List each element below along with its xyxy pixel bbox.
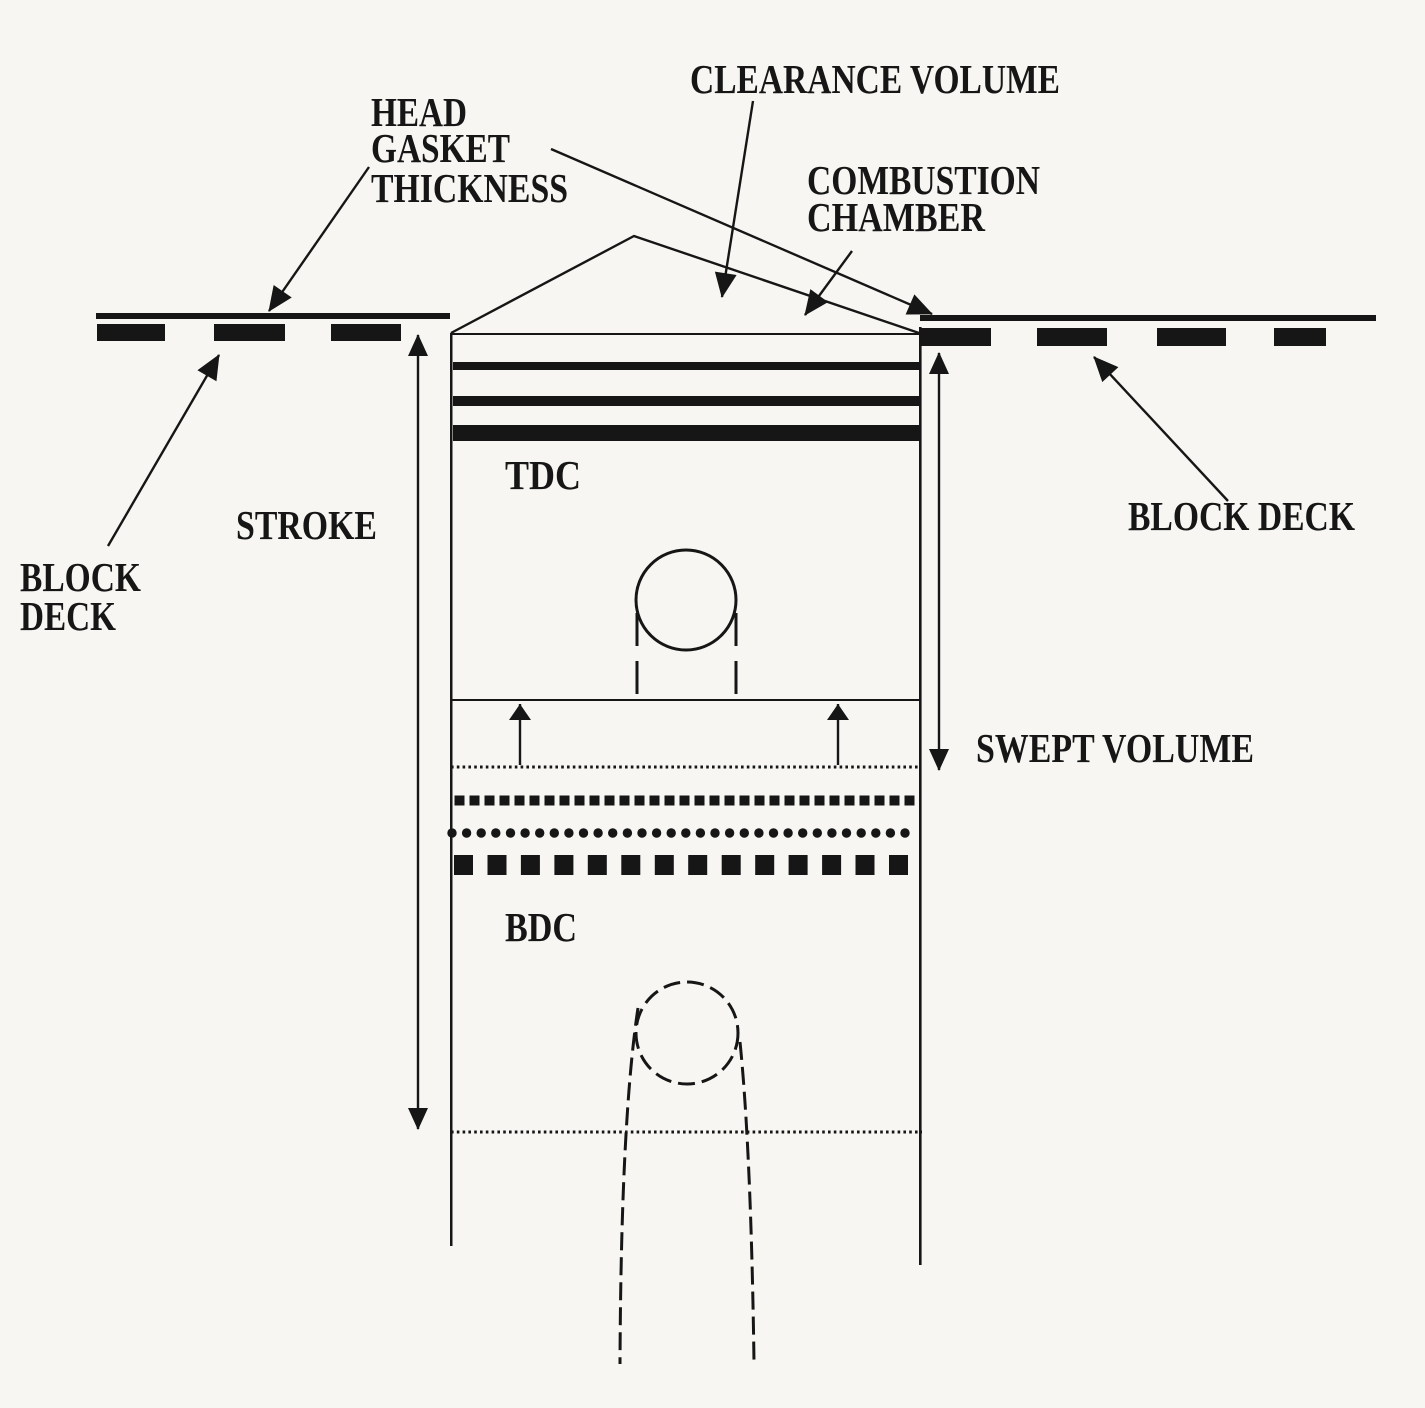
svg-text:BDC: BDC [505, 904, 577, 950]
svg-text:DECK: DECK [20, 593, 116, 639]
svg-text:STROKE: STROKE [236, 502, 377, 548]
svg-text:BLOCK DECK: BLOCK DECK [1128, 493, 1355, 539]
svg-text:CLEARANCE VOLUME: CLEARANCE VOLUME [690, 56, 1060, 102]
svg-text:THICKNESS: THICKNESS [371, 165, 568, 211]
svg-text:SWEPT VOLUME: SWEPT VOLUME [976, 725, 1254, 771]
svg-text:TDC: TDC [505, 452, 581, 498]
svg-text:CHAMBER: CHAMBER [807, 194, 985, 240]
